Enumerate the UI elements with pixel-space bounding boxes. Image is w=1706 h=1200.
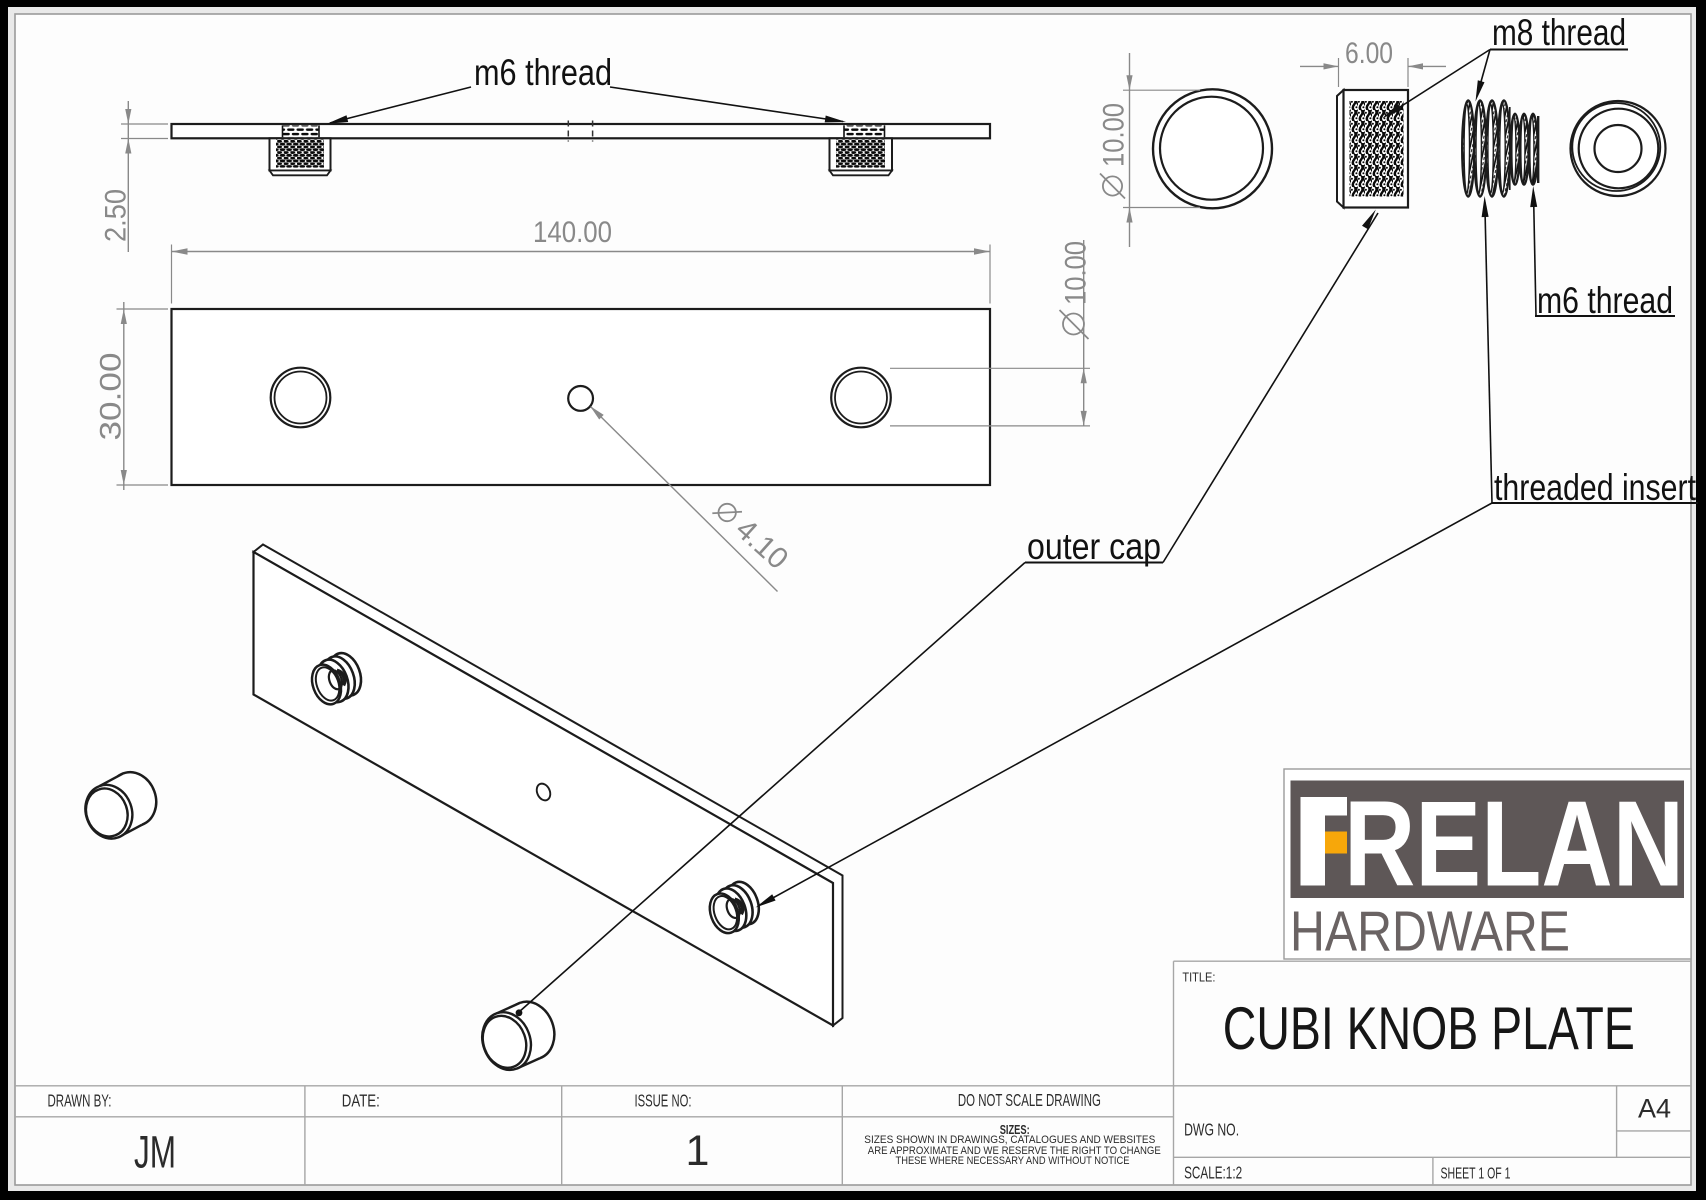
svg-text:10.00: 10.00 bbox=[1098, 103, 1131, 167]
svg-text:TITLE:: TITLE: bbox=[1182, 971, 1215, 985]
svg-text:DWG NO.: DWG NO. bbox=[1184, 1120, 1239, 1140]
svg-text:DRAWN BY:: DRAWN BY: bbox=[48, 1091, 112, 1111]
svg-text:140.00: 140.00 bbox=[533, 216, 612, 249]
svg-text:ISSUE NO:: ISSUE NO: bbox=[635, 1091, 692, 1111]
svg-text:HARDWARE: HARDWARE bbox=[1290, 899, 1570, 963]
svg-text:2.50: 2.50 bbox=[100, 189, 133, 242]
svg-text:1: 1 bbox=[686, 1127, 710, 1175]
svg-text:threaded insert: threaded insert bbox=[1494, 467, 1697, 508]
svg-text:SHEET 1 OF 1: SHEET 1 OF 1 bbox=[1441, 1165, 1511, 1182]
svg-text:DATE:: DATE: bbox=[342, 1091, 380, 1111]
svg-text:SCALE:1:2: SCALE:1:2 bbox=[1184, 1162, 1242, 1182]
svg-text:30.00: 30.00 bbox=[95, 353, 128, 441]
svg-text:outer cap: outer cap bbox=[1027, 526, 1161, 567]
svg-text:6.00: 6.00 bbox=[1345, 37, 1393, 70]
svg-text:m8 thread: m8 thread bbox=[1492, 12, 1626, 53]
svg-text:DO NOT SCALE DRAWING: DO NOT SCALE DRAWING bbox=[958, 1090, 1101, 1110]
svg-text:RELAN: RELAN bbox=[1344, 776, 1684, 912]
svg-text:10.00: 10.00 bbox=[1060, 241, 1093, 305]
svg-text:CUBI KNOB PLATE: CUBI KNOB PLATE bbox=[1223, 995, 1635, 1062]
svg-text:A4: A4 bbox=[1638, 1094, 1671, 1124]
svg-text:JM: JM bbox=[134, 1127, 176, 1178]
svg-text:m6 thread: m6 thread bbox=[1537, 280, 1673, 321]
svg-text:THESE WHERE NECESSARY AND WITH: THESE WHERE NECESSARY AND WITHOUT NOTICE bbox=[896, 1155, 1130, 1167]
svg-text:m6 thread: m6 thread bbox=[474, 52, 612, 93]
